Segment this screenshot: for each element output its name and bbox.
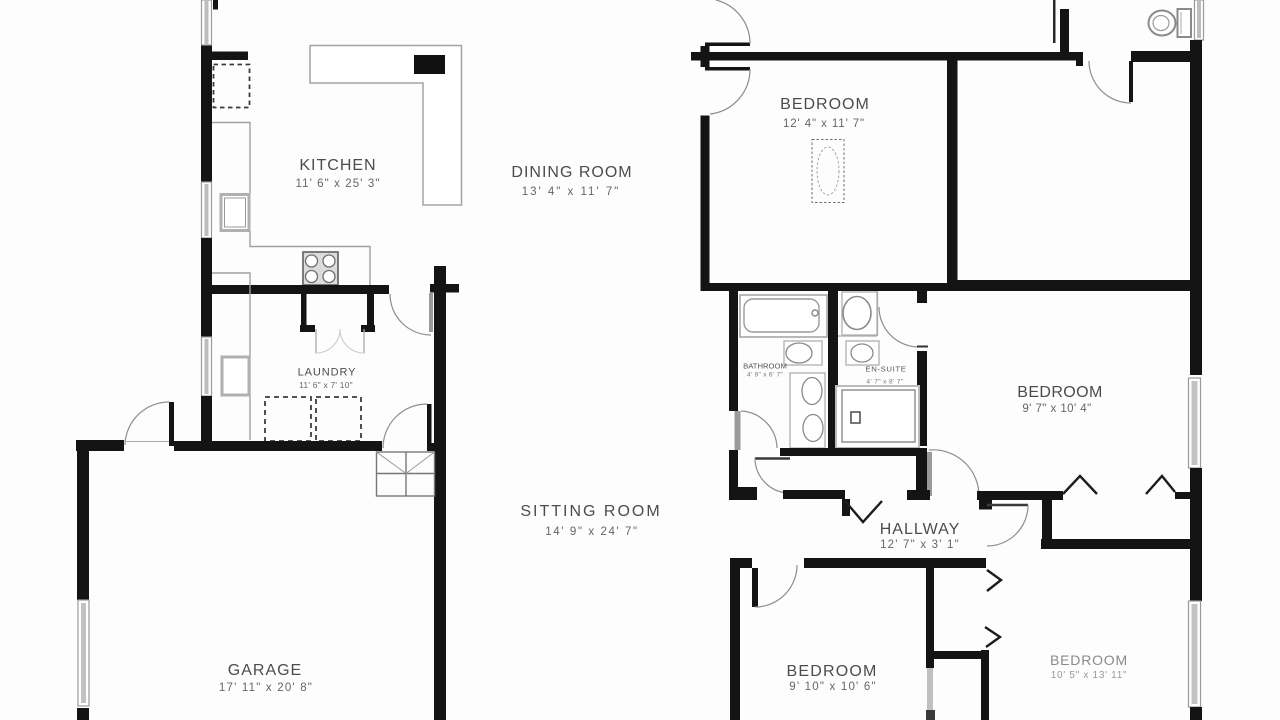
svg-text:BEDROOM: BEDROOM	[780, 96, 870, 113]
svg-text:HALLWAY: HALLWAY	[880, 521, 961, 538]
svg-text:11' 6" x 7' 10": 11' 6" x 7' 10"	[299, 380, 353, 390]
svg-text:DINING ROOM: DINING ROOM	[511, 164, 632, 181]
svg-text:EN-SUITE: EN-SUITE	[865, 365, 906, 374]
svg-text:13' 4" x 11' 7": 13' 4" x 11' 7"	[522, 186, 621, 198]
svg-text:GARAGE: GARAGE	[228, 662, 302, 679]
svg-text:BATHROOM: BATHROOM	[743, 362, 787, 371]
svg-text:4' 9" x 6' 7": 4' 9" x 6' 7"	[747, 372, 783, 379]
svg-text:11' 6" x 25' 3": 11' 6" x 25' 3"	[295, 178, 380, 190]
svg-text:9' 10" x 10' 6": 9' 10" x 10' 6"	[789, 681, 876, 693]
svg-text:17' 11" x 20' 8": 17' 11" x 20' 8"	[219, 682, 313, 694]
svg-text:BEDROOM: BEDROOM	[1017, 384, 1102, 401]
svg-text:KITCHEN: KITCHEN	[299, 157, 376, 174]
svg-text:SITTING ROOM: SITTING ROOM	[520, 503, 661, 520]
svg-text:LAUNDRY: LAUNDRY	[298, 367, 357, 379]
svg-text:12' 4" x 11' 7": 12' 4" x 11' 7"	[783, 118, 865, 130]
svg-text:4' 7" x 8' 7": 4' 7" x 8' 7"	[866, 379, 904, 386]
svg-text:12' 7" x 3' 1": 12' 7" x 3' 1"	[880, 539, 960, 551]
svg-text:10' 5" x 13' 11": 10' 5" x 13' 11"	[1051, 670, 1127, 681]
svg-text:BEDROOM: BEDROOM	[1050, 652, 1128, 668]
svg-text:14' 9" x 24' 7": 14' 9" x 24' 7"	[545, 526, 638, 538]
svg-text:9' 7" x 10' 4": 9' 7" x 10' 4"	[1022, 403, 1091, 415]
svg-text:BEDROOM: BEDROOM	[786, 663, 877, 680]
